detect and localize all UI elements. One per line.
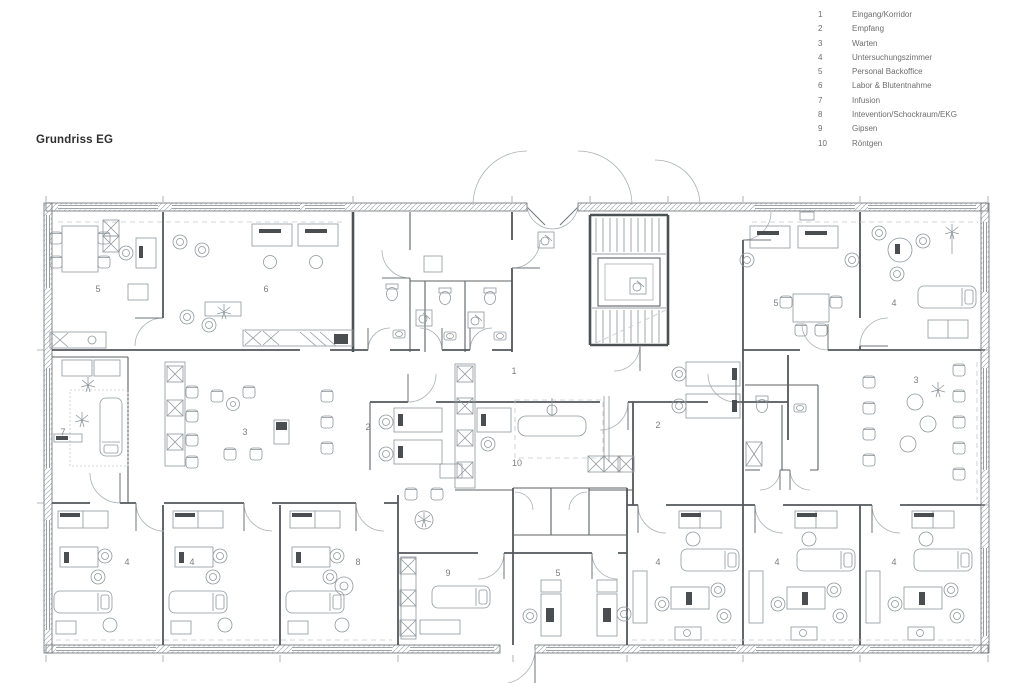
outer-walls-layer [44,203,989,653]
xray-ceiling-rail [515,400,603,458]
doors-layer [90,151,900,683]
floor-plan-drawing: 56541732102344895444 [0,0,1024,683]
room-number-label: 5 [773,298,778,308]
room-number-label: 4 [124,557,129,567]
room-number-label: 2 [365,422,370,432]
room-number-label: 2 [655,420,660,430]
room-number-label: 9 [445,568,450,578]
room-number-label: 5 [95,284,100,294]
ekg-machine [335,577,353,595]
elevator [598,258,660,306]
wheelchair-icon [630,278,646,294]
room-number-label: 4 [655,557,660,567]
room-number-label: 8 [355,557,360,567]
dashed-lines-layer [56,222,978,640]
floorplan-page: Grundriss EG 1Eingang/Korridor2Empfang3W… [0,0,1024,683]
room-number-label: 3 [242,427,247,437]
wheelchair-icon [416,310,432,326]
room-number-label: 4 [774,557,779,567]
room-number-label: 4 [891,298,896,308]
room-number-label: 3 [913,375,918,385]
room-number-label: 4 [891,557,896,567]
room-number-label: 4 [189,557,194,567]
wheelchair-icon [468,312,484,328]
room-number-label: 7 [60,427,65,437]
room-number-label: 1 [511,366,516,376]
room-number-label: 6 [263,284,268,294]
windows-layer [46,205,988,652]
stairwell [592,218,666,343]
room-number-label: 10 [512,458,522,468]
interior-walls-layer [52,212,985,645]
room-number-label: 5 [555,568,560,578]
